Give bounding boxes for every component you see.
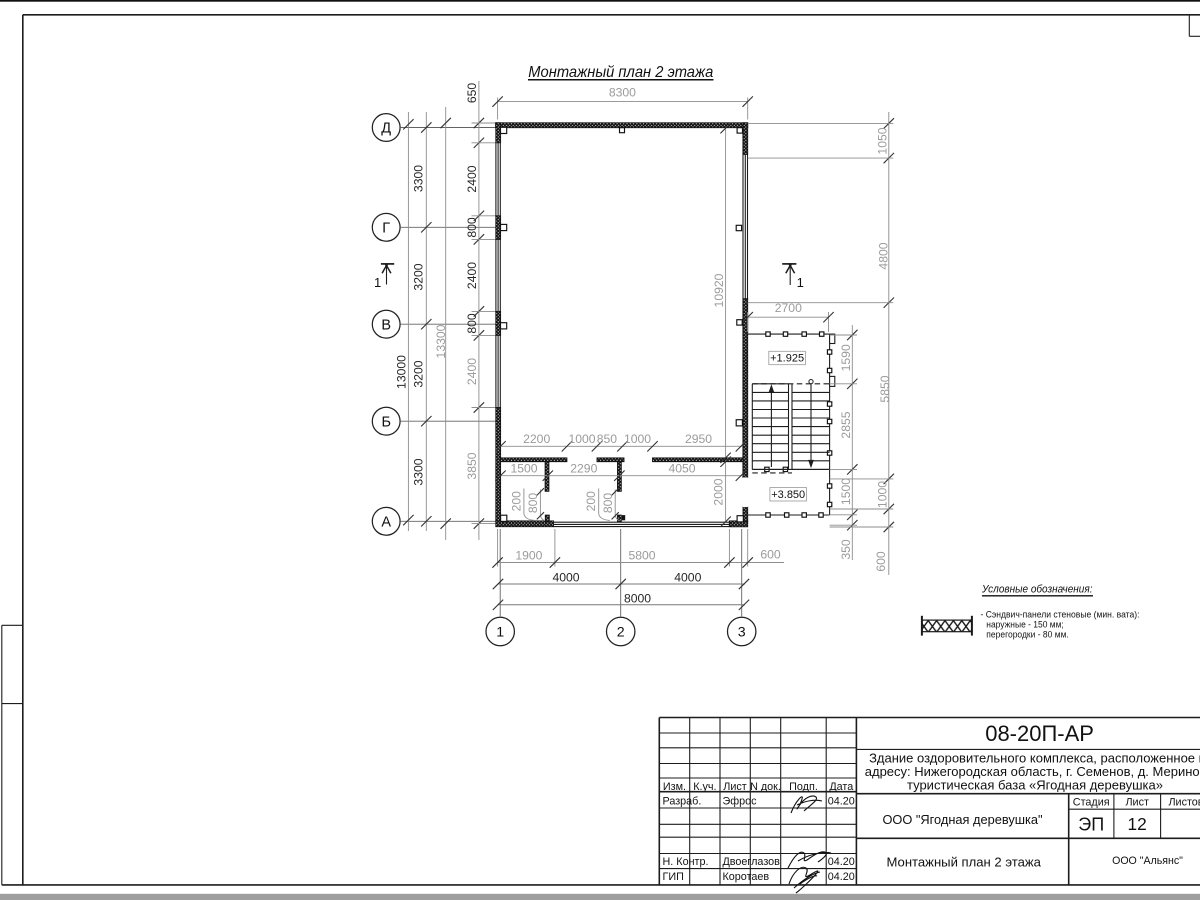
svg-text:1000: 1000	[876, 481, 890, 508]
svg-text:200: 200	[584, 491, 598, 512]
svg-text:Стадия: Стадия	[1073, 797, 1110, 809]
svg-text:04.20: 04.20	[828, 856, 855, 868]
svg-text:Монтажный план 2 этажа: Монтажный план 2 этажа	[528, 64, 713, 81]
svg-text:5850: 5850	[878, 375, 892, 402]
svg-text:8000: 8000	[624, 591, 651, 605]
svg-text:800: 800	[465, 217, 479, 238]
svg-text:Разраб.: Разраб.	[663, 796, 702, 808]
svg-text:Подп.: Подп.	[789, 781, 818, 793]
svg-text:350: 350	[839, 539, 853, 560]
svg-text:3: 3	[738, 625, 746, 641]
svg-text:ООО "Ягодная деревушка": ООО "Ягодная деревушка"	[882, 812, 1042, 827]
svg-text:2400: 2400	[465, 358, 479, 385]
svg-text:К.уч.: К.уч.	[693, 781, 716, 793]
svg-text:4800: 4800	[877, 242, 891, 269]
svg-text:2950: 2950	[685, 432, 712, 446]
svg-text:Г: Г	[382, 221, 390, 237]
svg-text:12: 12	[1127, 814, 1146, 834]
svg-text:Условные обозначения:: Условные обозначения:	[981, 584, 1092, 596]
svg-text:+1.925: +1.925	[770, 353, 804, 365]
svg-text:3300: 3300	[411, 165, 425, 192]
svg-text:Б: Б	[381, 414, 391, 430]
svg-text:N док.: N док.	[750, 781, 781, 793]
svg-text:Н. Контр.: Н. Контр.	[663, 856, 709, 868]
svg-text:Лист: Лист	[1125, 797, 1149, 809]
svg-text:3200: 3200	[411, 263, 425, 290]
svg-text:800: 800	[465, 313, 479, 334]
svg-text:2855: 2855	[839, 411, 853, 438]
svg-text:Изм.: Изм.	[663, 781, 686, 793]
svg-text:1: 1	[496, 625, 504, 641]
svg-text:1900: 1900	[515, 549, 542, 563]
svg-text:08-20П-АР: 08-20П-АР	[985, 721, 1094, 746]
svg-text:2400: 2400	[465, 165, 479, 192]
svg-text:5800: 5800	[628, 549, 655, 563]
svg-text:Д: Д	[381, 121, 391, 137]
svg-text:ГИП: ГИП	[663, 871, 684, 883]
svg-text:650: 650	[465, 83, 479, 104]
svg-text:13000: 13000	[395, 355, 409, 389]
svg-text:200: 200	[509, 491, 523, 512]
svg-text:ЭП: ЭП	[1078, 815, 1104, 835]
svg-text:800: 800	[601, 493, 615, 514]
svg-text:1000: 1000	[624, 432, 651, 446]
svg-text:2290: 2290	[570, 462, 597, 476]
svg-text:1500: 1500	[510, 462, 537, 476]
svg-text:1: 1	[374, 275, 381, 290]
svg-text:Коротаев: Коротаев	[723, 871, 770, 883]
svg-text:2: 2	[617, 625, 625, 641]
svg-text:ООО "Альянс": ООО "Альянс"	[1112, 855, 1183, 867]
svg-text:4050: 4050	[668, 462, 695, 476]
svg-text:1590: 1590	[839, 344, 853, 371]
svg-text:04.20: 04.20	[828, 871, 855, 883]
svg-text:04.20: 04.20	[828, 796, 855, 808]
svg-text:4000: 4000	[552, 570, 579, 584]
svg-text:В: В	[381, 317, 391, 333]
svg-text:туристическая база «Ягодная де: туристическая база «Ягодная деревушка»	[907, 777, 1163, 792]
svg-text:1050: 1050	[876, 127, 890, 154]
svg-text:Листов: Листов	[1168, 797, 1200, 809]
svg-text:1500: 1500	[839, 478, 853, 505]
svg-text:3850: 3850	[465, 452, 479, 479]
svg-text:1000: 1000	[568, 432, 595, 446]
svg-text:2400: 2400	[465, 262, 479, 289]
svg-text:2000: 2000	[712, 478, 726, 505]
svg-text:3300: 3300	[411, 458, 425, 485]
svg-text:13300: 13300	[434, 324, 448, 358]
svg-text:Эфрос: Эфрос	[723, 796, 758, 808]
svg-text:2200: 2200	[523, 432, 550, 446]
svg-text:2700: 2700	[775, 301, 802, 315]
svg-text:перегородки - 80 мм.: перегородки - 80 мм.	[986, 630, 1069, 641]
svg-text:Двоеглазов: Двоеглазов	[723, 856, 781, 868]
svg-text:+3.850: +3.850	[771, 489, 805, 501]
svg-text:1: 1	[797, 275, 804, 290]
svg-text:10920: 10920	[712, 273, 726, 307]
svg-text:8300: 8300	[609, 86, 636, 100]
svg-text:4000: 4000	[674, 570, 701, 584]
svg-text:Лист: Лист	[723, 781, 747, 793]
svg-text:800: 800	[526, 493, 540, 514]
svg-text:600: 600	[874, 551, 888, 572]
svg-text:Монтажный план 2 этажа: Монтажный план 2 этажа	[886, 854, 1041, 869]
svg-text:3200: 3200	[411, 360, 425, 387]
svg-text:Дата: Дата	[829, 781, 853, 793]
svg-text:850: 850	[597, 432, 618, 446]
svg-text:А: А	[381, 515, 391, 531]
svg-text:600: 600	[760, 548, 781, 562]
